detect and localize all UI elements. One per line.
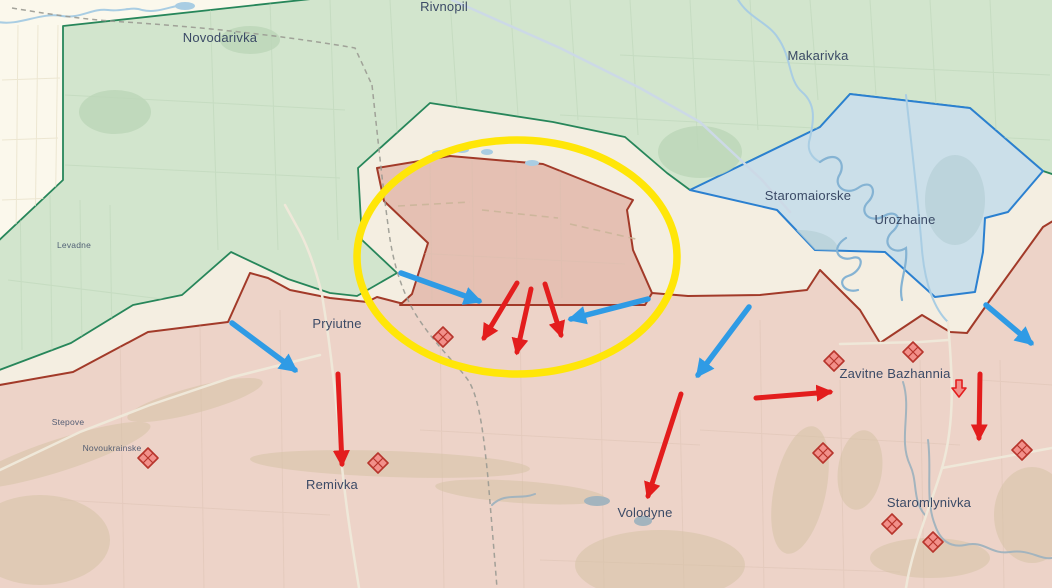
town-label-novoukrainske: Novoukrainske (83, 443, 142, 453)
town-label-zavitne-bazhannia: Zavitne Bazhannia (839, 366, 951, 381)
town-label-novodarivka: Novodarivka (183, 30, 258, 45)
map-canvas[interactable]: NovodarivkaRivnopilMakarivkaStaromaiorsk… (0, 0, 1052, 588)
town-label-staromaiorske: Staromaiorske (765, 188, 851, 203)
town-label-pryiutne: Pryiutne (312, 316, 361, 331)
attack-arrow (979, 374, 980, 438)
town-label-remivka: Remivka (306, 477, 359, 492)
town-label-levadne: Levadne (57, 240, 91, 250)
town-label-urozhaine: Urozhaine (874, 212, 935, 227)
town-label-makarivka: Makarivka (787, 48, 849, 63)
town-label-staromlynivka: Staromlynivka (887, 495, 972, 510)
town-label-volodyne: Volodyne (617, 505, 672, 520)
town-label-rivnopil: Rivnopil (420, 0, 468, 14)
town-label-stepove: Stepove (52, 417, 85, 427)
